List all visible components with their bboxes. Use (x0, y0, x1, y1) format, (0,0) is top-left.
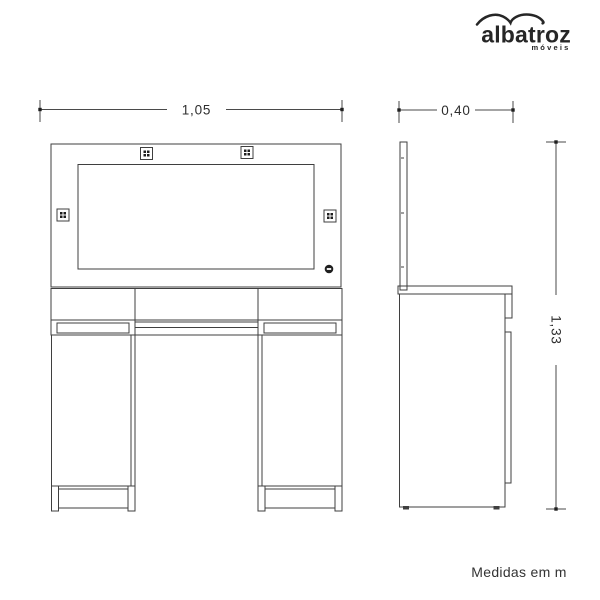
brand-tagline: móveis (531, 43, 570, 52)
drawer-front-overhang (505, 294, 512, 318)
logo: albatroz móveis (477, 15, 571, 53)
tabletop-side (398, 286, 512, 294)
led-light-top-left-icon (141, 148, 153, 160)
foot-block (128, 486, 135, 511)
dimension-height: 1,33 (546, 140, 566, 510)
kick-panel (265, 489, 335, 508)
dimension-height-label: 1,33 (549, 315, 564, 344)
foot-block (52, 486, 59, 511)
strip-outline (135, 322, 258, 335)
dim-dot (340, 108, 343, 111)
kick-panel (59, 489, 129, 508)
cabinet-body-side (400, 294, 506, 507)
middle-tabletop-strip (135, 322, 258, 335)
dim-dot (554, 140, 557, 143)
apron-inset (264, 323, 336, 333)
mirror-panel-side (400, 142, 407, 290)
dimension-width-label: 1,05 (182, 103, 211, 118)
foot-glide (494, 506, 500, 510)
right-pedestal (258, 335, 342, 511)
power-button-slot (327, 268, 331, 270)
led-light-top-right-icon (241, 147, 253, 159)
dimension-width: 1,05 (38, 100, 343, 122)
foot-block (258, 486, 265, 511)
dim-dot (38, 108, 41, 111)
drawer-row (51, 289, 342, 336)
left-pedestal (52, 335, 136, 511)
power-button-icon (325, 265, 334, 274)
apron-inset (57, 323, 129, 333)
dim-dot (397, 108, 400, 111)
drawer-row-outline (51, 289, 342, 321)
left-apron-band (51, 320, 135, 335)
drawing-sheet: albatroz móveis 1,05 0,40 1,33 (0, 0, 600, 600)
side-view (398, 142, 512, 510)
foot-glide (403, 506, 409, 510)
front-view (51, 144, 342, 511)
pedestal-outline (52, 335, 136, 486)
dim-dot (511, 108, 514, 111)
mirror-glass (78, 165, 314, 270)
dimension-depth: 0,40 (397, 101, 514, 123)
dimension-depth-label: 0,40 (441, 103, 470, 118)
measure-unit-note: Medidas em m (471, 564, 566, 580)
door-front-overhang (505, 332, 511, 483)
pedestal-outline (258, 335, 342, 486)
right-apron-band (258, 320, 342, 335)
dim-dot (554, 507, 557, 510)
foot-block (335, 486, 342, 511)
mirror-frame (51, 144, 341, 287)
technical-drawing: albatroz móveis 1,05 0,40 1,33 (0, 0, 600, 600)
led-light-right-icon (324, 210, 336, 222)
led-light-left-icon (57, 209, 69, 221)
